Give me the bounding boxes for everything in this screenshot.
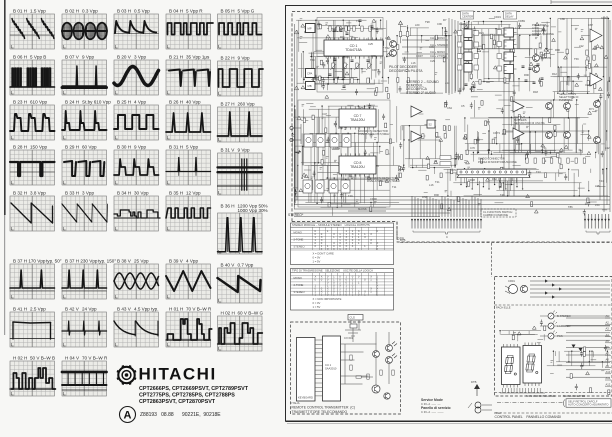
svg-text:R11: R11 bbox=[340, 35, 345, 39]
svg-text:260 Vpp: 260 Vpp bbox=[238, 101, 256, 106]
svg-text:T46: T46 bbox=[500, 193, 505, 197]
svg-text:T69: T69 bbox=[310, 58, 315, 62]
svg-text:C29: C29 bbox=[430, 59, 435, 63]
svg-text:B 22 H: B 22 H bbox=[221, 55, 235, 60]
svg-text:T59: T59 bbox=[574, 57, 579, 61]
svg-text:B 06 H: B 06 H bbox=[13, 54, 27, 59]
svg-text:CX 601: CX 601 bbox=[344, 336, 353, 340]
svg-text:STEREO*: STEREO* bbox=[288, 213, 304, 217]
svg-text:Service Mode: Service Mode bbox=[421, 398, 443, 402]
svg-text:C: C bbox=[446, 235, 448, 239]
svg-text:0 = 0V: 0 = 0V bbox=[313, 301, 321, 305]
svg-text:B 24 H: B 24 H bbox=[65, 99, 79, 104]
svg-text:R21: R21 bbox=[479, 31, 484, 35]
svg-text:0 = 0V: 0 = 0V bbox=[313, 256, 321, 260]
svg-text:B 31 V: B 31 V bbox=[221, 147, 236, 152]
svg-text:60 V B–W G: 60 V B–W G bbox=[238, 310, 264, 315]
svg-text:A6: A6 bbox=[606, 345, 610, 349]
svg-text:B 31 H: B 31 H bbox=[169, 144, 183, 149]
svg-text:3.8 Vpp: 3.8 Vpp bbox=[30, 190, 46, 195]
svg-text:TDA4718A: TDA4718A bbox=[345, 48, 362, 52]
svg-text:DTB: DTB bbox=[400, 238, 406, 242]
svg-text:CD38: CD38 bbox=[468, 178, 475, 182]
svg-text:B 36 H: B 36 H bbox=[221, 203, 235, 208]
svg-text:X: X bbox=[370, 232, 372, 236]
svg-text:L16: L16 bbox=[411, 61, 416, 65]
svg-text:L12: L12 bbox=[515, 26, 520, 30]
svg-text:C25: C25 bbox=[368, 42, 373, 46]
svg-text:A11: A11 bbox=[606, 376, 611, 380]
svg-text:GUIDO CONNECTOR: GUIDO CONNECTOR bbox=[478, 157, 505, 161]
svg-text:T86: T86 bbox=[568, 205, 573, 209]
svg-text:2-TONE: 2-TONE bbox=[294, 283, 304, 287]
svg-text:COMMUTAZIONE: COMMUTAZIONE bbox=[532, 32, 554, 36]
svg-text:C86: C86 bbox=[560, 17, 565, 21]
svg-text:CENTER: CENTER bbox=[462, 15, 473, 19]
svg-text:KEYBOARD: KEYBOARD bbox=[298, 396, 313, 400]
svg-text:B 32 H: B 32 H bbox=[13, 190, 27, 195]
svg-text:X: X bbox=[327, 247, 329, 251]
svg-text:CD97: CD97 bbox=[416, 54, 423, 58]
svg-text:RIVELATORE FM 5,74MHz: RIVELATORE FM 5,74MHz bbox=[367, 179, 401, 183]
svg-text:B 01 H: B 01 H bbox=[13, 8, 27, 13]
svg-text:Z88193 08.88 90221E, 9: Z88193 08.88 90221E, 90218E bbox=[140, 412, 221, 418]
svg-text:AUTO-CONCERTO ADURNTATO: AUTO-CONCERTO ADURNTATO bbox=[568, 403, 608, 407]
svg-text:B 33 H: B 33 H bbox=[65, 190, 79, 195]
svg-text:CD10: CD10 bbox=[601, 16, 608, 20]
svg-text:B 35 H: B 35 H bbox=[169, 190, 183, 195]
svg-text:24 Vpp: 24 Vpp bbox=[82, 306, 97, 311]
svg-text:5 Vpp G: 5 Vpp G bbox=[238, 8, 255, 13]
svg-text:C64: C64 bbox=[447, 106, 452, 110]
svg-text:CD15: CD15 bbox=[459, 22, 466, 26]
svg-text:40 Vpp: 40 Vpp bbox=[186, 99, 201, 104]
svg-text:FUNZIONE: FUNZIONE bbox=[559, 98, 573, 102]
svg-text:DECODIFICA PILOTA: DECODIFICA PILOTA bbox=[389, 69, 423, 73]
svg-text:A9: A9 bbox=[606, 364, 610, 368]
svg-text:2-TONE: 2-TONE bbox=[294, 238, 304, 242]
svg-text:PACH ELLE: PACH ELLE bbox=[496, 306, 511, 310]
svg-text:50 V B–W B: 50 V B–W B bbox=[30, 355, 55, 360]
svg-text:C65: C65 bbox=[371, 54, 376, 58]
svg-text:C87: C87 bbox=[588, 23, 593, 27]
svg-text:A: A bbox=[124, 410, 132, 422]
svg-text:B 23 H: B 23 H bbox=[13, 99, 27, 104]
svg-text:1 = 5V: 1 = 5V bbox=[313, 260, 321, 264]
svg-text:B 05 H: B 05 H bbox=[221, 8, 235, 13]
svg-text:B 30 H: B 30 H bbox=[117, 144, 131, 149]
svg-text:S2: S2 bbox=[429, 123, 433, 127]
svg-text:BC857B: BC857B bbox=[541, 56, 551, 60]
svg-text:0.5 Vpp: 0.5 Vpp bbox=[134, 8, 150, 13]
svg-text:X: X bbox=[364, 235, 366, 239]
svg-text:4 Vpp: 4 Vpp bbox=[134, 99, 146, 104]
svg-text:CD72: CD72 bbox=[370, 27, 377, 31]
svg-text:L54: L54 bbox=[595, 203, 600, 207]
svg-text:T44: T44 bbox=[599, 179, 604, 183]
svg-text:CPT2863PSVT, CPT2870PSVT: CPT2863PSVT, CPT2870PSVT bbox=[139, 399, 216, 405]
svg-text:T49: T49 bbox=[348, 194, 353, 198]
svg-text:R7: R7 bbox=[443, 18, 447, 22]
svg-text:STEREO: STEREO bbox=[294, 245, 305, 249]
svg-text:L81: L81 bbox=[385, 36, 390, 40]
svg-text:L65: L65 bbox=[595, 184, 600, 188]
svg-text:25 Vpp: 25 Vpp bbox=[134, 258, 149, 263]
svg-text:9 Vpp: 9 Vpp bbox=[134, 144, 146, 149]
svg-text:1 = 5V: 1 = 5V bbox=[313, 305, 321, 309]
svg-text:B 07 V: B 07 V bbox=[65, 54, 80, 59]
svg-text:CD77: CD77 bbox=[372, 68, 379, 72]
svg-text:CONTROL PANEL PANNELLO COMA: CONTROL PANEL PANNELLO COMANDI bbox=[495, 415, 562, 419]
svg-text:1000 Vpp 30%: 1000 Vpp 30% bbox=[238, 208, 268, 213]
svg-text:MP: MP bbox=[308, 27, 312, 31]
svg-text:CPT2666PS, CPT2669PSVT, CPT278: CPT2666PS, CPT2669PSVT, CPT2789PSVT bbox=[139, 386, 249, 392]
svg-text:B 26 H: B 26 H bbox=[169, 99, 183, 104]
svg-text:A12: A12 bbox=[606, 382, 611, 386]
svg-text:9 Vpp: 9 Vpp bbox=[238, 147, 250, 152]
svg-text:Panello di servizio: Panello di servizio bbox=[421, 406, 451, 410]
svg-text:R90: R90 bbox=[524, 73, 529, 77]
svg-text:L35: L35 bbox=[592, 47, 597, 51]
svg-text:CD89: CD89 bbox=[518, 19, 525, 23]
svg-text:T4: T4 bbox=[356, 19, 360, 23]
svg-text:HITACHI: HITACHI bbox=[139, 365, 217, 384]
svg-text:T21: T21 bbox=[435, 180, 440, 184]
svg-text:X = DON’T CARE: X = DON’T CARE bbox=[313, 252, 334, 256]
svg-text:X: X bbox=[339, 292, 341, 296]
svg-text:B 28 H: B 28 H bbox=[13, 144, 27, 149]
svg-text:TBA120U: TBA120U bbox=[350, 118, 365, 122]
svg-text:30 Vpp: 30 Vpp bbox=[134, 190, 149, 195]
svg-text:ITALIA: ITALIA bbox=[292, 401, 300, 405]
svg-text:0.7 Vpp: 0.7 Vpp bbox=[238, 262, 254, 267]
svg-text:B 04 H: B 04 H bbox=[169, 8, 183, 13]
svg-text:St.by 610 Vpp: St.by 610 Vpp bbox=[82, 99, 111, 104]
svg-text:PRESA DI MONITOR/USCIONE: PRESA DI MONITOR/USCIONE bbox=[478, 160, 517, 164]
svg-text:X = NON IMPORTANTE: X = NON IMPORTANTE bbox=[313, 297, 342, 301]
svg-text:A7: A7 bbox=[606, 351, 610, 355]
svg-text:B 43 V: B 43 V bbox=[117, 306, 132, 311]
svg-text:610 Vpp: 610 Vpp bbox=[30, 99, 48, 104]
svg-text:R56: R56 bbox=[422, 195, 427, 199]
svg-text:C99: C99 bbox=[429, 45, 434, 49]
svg-text:4.5 Vpp typ.: 4.5 Vpp typ. bbox=[134, 306, 159, 311]
svg-text:T61: T61 bbox=[542, 146, 547, 150]
svg-text:70 V B–W R: 70 V B–W R bbox=[82, 355, 108, 360]
svg-text:L92: L92 bbox=[605, 146, 610, 150]
svg-text:CH + MONO: CH + MONO bbox=[430, 50, 445, 54]
svg-text:A3: A3 bbox=[606, 327, 610, 331]
svg-text:L8: L8 bbox=[434, 159, 437, 163]
svg-text:T42: T42 bbox=[385, 46, 390, 50]
svg-text:L60: L60 bbox=[415, 23, 420, 27]
svg-text:MB: MB bbox=[308, 84, 312, 88]
svg-text:A8: A8 bbox=[606, 358, 610, 362]
svg-text:STEREO: STEREO bbox=[294, 290, 305, 294]
svg-text:60 Vpp: 60 Vpp bbox=[82, 144, 97, 149]
svg-text:B 38 V: B 38 V bbox=[117, 258, 132, 263]
svg-text:5 Vpp R: 5 Vpp R bbox=[186, 8, 203, 13]
svg-text:5 Vpp B: 5 Vpp B bbox=[30, 54, 46, 59]
svg-text:B 42 V: B 42 V bbox=[65, 306, 80, 311]
svg-text:R86: R86 bbox=[555, 48, 560, 52]
svg-text:DELAY: DELAY bbox=[505, 15, 514, 19]
svg-text:A10: A10 bbox=[606, 370, 611, 374]
svg-text:SAA3010: SAA3010 bbox=[325, 367, 337, 371]
svg-text:T11: T11 bbox=[392, 185, 397, 189]
svg-text:CD19: CD19 bbox=[494, 15, 501, 19]
svg-text:T23: T23 bbox=[536, 170, 541, 174]
svg-text:C76: C76 bbox=[451, 168, 456, 172]
svg-text:A5: A5 bbox=[606, 339, 610, 343]
svg-text:CAMBIO FUNZIONE: CAMBIO FUNZIONE bbox=[483, 213, 508, 217]
svg-text:MONO: MONO bbox=[294, 231, 302, 235]
svg-text:L94: L94 bbox=[436, 135, 441, 139]
svg-text:B 29 H: B 29 H bbox=[65, 144, 79, 149]
svg-text:STEREO 2° AUDIO: STEREO 2° AUDIO bbox=[406, 91, 436, 95]
svg-text:MAINS ISOLATED: MAINS ISOLATED bbox=[563, 394, 585, 398]
svg-text:CH + MONO: CH + MONO bbox=[430, 36, 445, 40]
svg-text:H 01 H: H 01 H bbox=[169, 306, 183, 311]
svg-text:2.5 Vpp: 2.5 Vpp bbox=[30, 306, 46, 311]
svg-text:NON MAINS ISOLATED: NON MAINS ISOLATED bbox=[526, 394, 555, 398]
svg-text:B 27 H: B 27 H bbox=[221, 101, 235, 106]
svg-text:B 40 V: B 40 V bbox=[221, 262, 236, 267]
svg-text:CU2: CU2 bbox=[350, 316, 356, 320]
svg-text:1.5 Vpp: 1.5 Vpp bbox=[30, 8, 46, 13]
svg-text:150 Vpp: 150 Vpp bbox=[30, 144, 48, 149]
svg-text:B 21 H: B 21 H bbox=[169, 54, 183, 59]
svg-text:MONO: MONO bbox=[294, 276, 302, 280]
svg-text:TIPO DI TRASMISSIONE SELEZIO: TIPO DI TRASMISSIONE SELEZIONE USCITE DE… bbox=[292, 269, 373, 273]
svg-text:B 39 V: B 39 V bbox=[169, 258, 184, 263]
svg-text:typ. 50°: typ. 50° bbox=[46, 258, 62, 263]
svg-text:T98: T98 bbox=[425, 20, 430, 24]
svg-text:B 41 H: B 41 H bbox=[13, 306, 27, 311]
svg-text:MAINS: MAINS bbox=[358, 207, 367, 211]
svg-text:3 Vpp: 3 Vpp bbox=[134, 54, 146, 59]
svg-text:REMOTE CONTROL TRANSMITTER (C: REMOTE CONTROL TRANSMITTER (C) bbox=[292, 406, 355, 410]
svg-text:C70: C70 bbox=[470, 146, 475, 150]
svg-text:B 20 V: B 20 V bbox=[117, 54, 132, 59]
svg-text:B 37 H 230 Vpp: B 37 H 230 Vpp bbox=[65, 258, 98, 263]
svg-text:R18: R18 bbox=[533, 90, 538, 94]
svg-text:H 02 H: H 02 H bbox=[13, 355, 27, 360]
svg-text:C96: C96 bbox=[437, 22, 442, 26]
svg-text:L92: L92 bbox=[579, 44, 584, 48]
svg-text:TRASMETTITORE TELECOMANDO: TRASMETTITORE TELECOMANDO bbox=[292, 410, 348, 414]
svg-text:R12: R12 bbox=[552, 72, 557, 76]
svg-text:B 34 H: B 34 H bbox=[117, 190, 131, 195]
svg-text:9 Vpp: 9 Vpp bbox=[238, 55, 250, 60]
svg-text:CH + 2 TONE: CH + 2 TONE bbox=[430, 54, 447, 58]
svg-text:C R L A ––– ––––: C R L A ––– –––– bbox=[421, 410, 444, 414]
svg-text:0.3 Vpp: 0.3 Vpp bbox=[82, 8, 98, 13]
svg-text:CR01: CR01 bbox=[508, 279, 515, 283]
svg-text:DTB: DTB bbox=[471, 380, 477, 384]
svg-text:CPA: CPA bbox=[307, 72, 313, 76]
svg-text:CPT2775PS, CPT2785PS, CPT2788P: CPT2775PS, CPT2785PS, CPT2788PS bbox=[139, 393, 235, 399]
svg-text:B 03 H: B 03 H bbox=[117, 8, 131, 13]
svg-text:TBA120U: TBA120U bbox=[350, 165, 365, 169]
svg-text:12 Vpp: 12 Vpp bbox=[186, 190, 201, 195]
svg-text:B 02 H: B 02 H bbox=[65, 8, 79, 13]
svg-text:typ. 150°: typ. 150° bbox=[98, 258, 116, 263]
svg-text:H 04 V: H 04 V bbox=[65, 355, 80, 360]
svg-text:CU 1: CU 1 bbox=[325, 363, 332, 367]
svg-text:CD96: CD96 bbox=[370, 197, 377, 201]
svg-text:5 Vpp: 5 Vpp bbox=[186, 144, 198, 149]
svg-text:B 25 H: B 25 H bbox=[117, 99, 131, 104]
svg-text:R90: R90 bbox=[434, 193, 439, 197]
svg-text:C47: C47 bbox=[322, 112, 327, 116]
svg-text:4 Vpp: 4 Vpp bbox=[186, 258, 198, 263]
svg-text:3 Vpp: 3 Vpp bbox=[82, 190, 94, 195]
svg-text:STEREO MODULE – MODULE STEREO: STEREO MODULE – MODULE STEREO LOGICAL OU… bbox=[292, 223, 370, 227]
svg-text:C5: C5 bbox=[461, 104, 465, 108]
svg-text:A4: A4 bbox=[606, 333, 610, 337]
svg-text:A2: A2 bbox=[606, 320, 610, 324]
svg-text:L26: L26 bbox=[516, 142, 521, 146]
svg-text:9 Vpp: 9 Vpp bbox=[82, 54, 94, 59]
svg-text:H 02 H: H 02 H bbox=[221, 310, 235, 315]
svg-text:L16: L16 bbox=[429, 183, 434, 187]
svg-text:B 37 H 170 Vpp: B 37 H 170 Vpp bbox=[13, 258, 46, 263]
svg-text:RIVELATORE FM 5,5MHz: RIVELATORE FM 5,5MHz bbox=[358, 132, 390, 136]
svg-text:A1: A1 bbox=[606, 314, 610, 318]
svg-text:35 Vpp 1μs: 35 Vpp 1μs bbox=[186, 54, 210, 59]
svg-text:R71: R71 bbox=[589, 107, 594, 111]
svg-text:CD73: CD73 bbox=[493, 131, 500, 135]
svg-text:SEPARATORI DI USCITA: SEPARATORI DI USCITA bbox=[514, 121, 545, 125]
svg-text:70 V B–W R: 70 V B–W R bbox=[186, 306, 212, 311]
